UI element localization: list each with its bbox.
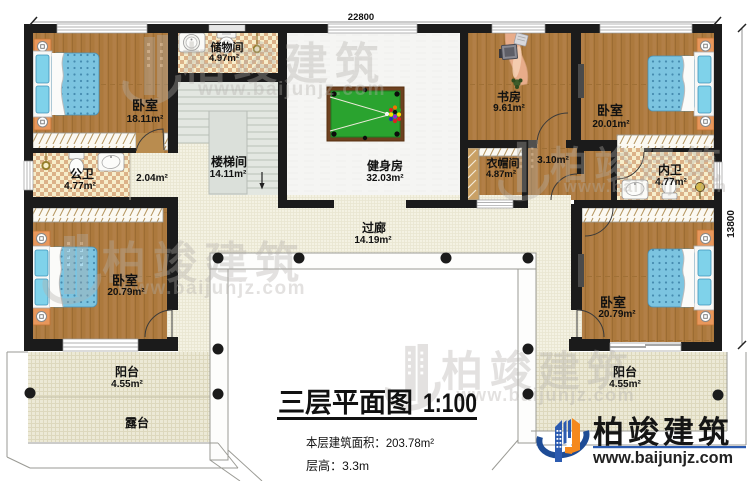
svg-text:过廊: 过廊 xyxy=(362,220,386,235)
svg-text:4.55m²: 4.55m² xyxy=(111,379,143,390)
svg-text:20.79m²: 20.79m² xyxy=(598,309,636,320)
svg-text:18.11m²: 18.11m² xyxy=(127,114,164,125)
svg-text:卧室: 卧室 xyxy=(597,103,623,118)
svg-text:楼梯间: 楼梯间 xyxy=(211,154,247,169)
svg-text:www.baijunjz.com: www.baijunjz.com xyxy=(592,449,733,467)
svg-text:储物间: 储物间 xyxy=(211,40,244,54)
svg-text:衣帽间: 衣帽间 xyxy=(487,156,520,170)
svg-text:22800: 22800 xyxy=(348,12,374,23)
svg-text:本层建筑面积：203.78m²: 本层建筑面积：203.78m² xyxy=(306,435,434,450)
svg-text:20.01m²: 20.01m² xyxy=(592,119,630,130)
svg-text:健身房: 健身房 xyxy=(367,158,403,173)
svg-text:13800: 13800 xyxy=(726,210,737,238)
svg-text:2.04m²: 2.04m² xyxy=(136,173,168,184)
svg-text:层高：3.3m: 层高：3.3m xyxy=(306,458,369,473)
svg-text:书房: 书房 xyxy=(497,89,521,104)
svg-text:4.55m²: 4.55m² xyxy=(609,379,641,390)
svg-text:露台: 露台 xyxy=(125,415,149,430)
svg-text:卧室: 卧室 xyxy=(132,98,158,113)
svg-text:3.10m²: 3.10m² xyxy=(537,155,569,166)
svg-text:4.77m²: 4.77m² xyxy=(64,181,96,192)
svg-text:阳台: 阳台 xyxy=(115,364,139,379)
svg-text:三层平面图: 三层平面图 xyxy=(278,388,413,418)
svg-text:14.11m²: 14.11m² xyxy=(210,169,247,180)
svg-text:4.97m²: 4.97m² xyxy=(209,53,239,64)
svg-text:卧室: 卧室 xyxy=(600,295,626,310)
svg-text:1:100: 1:100 xyxy=(423,388,477,418)
svg-text:4.87m²: 4.87m² xyxy=(486,169,516,180)
svg-text:阳台: 阳台 xyxy=(613,364,637,379)
svg-text:32.03m²: 32.03m² xyxy=(366,173,404,184)
svg-text:20.79m²: 20.79m² xyxy=(107,287,145,298)
svg-text:14.19m²: 14.19m² xyxy=(354,235,392,246)
svg-text:柏竣建筑: 柏竣建筑 xyxy=(593,415,733,450)
svg-text:公卫: 公卫 xyxy=(70,167,94,181)
svg-text:9.61m²: 9.61m² xyxy=(493,103,525,114)
svg-text:卧室: 卧室 xyxy=(112,273,138,288)
svg-text:内卫: 内卫 xyxy=(658,162,682,177)
svg-text:4.77m²: 4.77m² xyxy=(655,177,687,188)
